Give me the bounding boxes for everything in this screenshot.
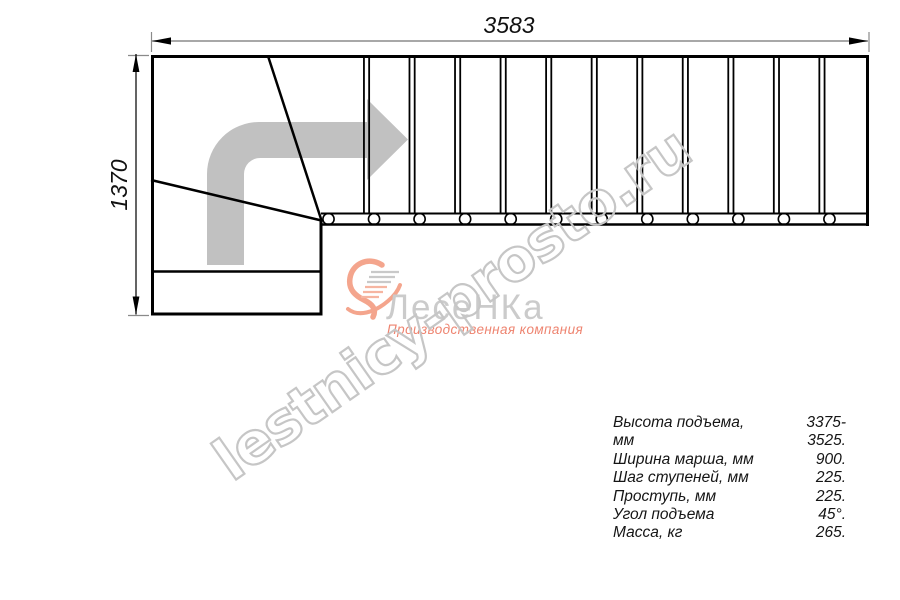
stringer-hole (642, 213, 653, 224)
spec-row-step-pitch: Шаг ступеней, мм 225. (613, 469, 846, 487)
spec-label: Высота подъема, мм (613, 414, 768, 451)
stringer-hole (778, 213, 789, 224)
logo-subtitle: Производственная компания (387, 322, 583, 337)
spec-row-height: Высота подъема, мм 3375-3525. (613, 414, 846, 451)
stringer-hole (551, 213, 562, 224)
spec-value: 225. (816, 488, 846, 506)
spec-label: Масса, кг (613, 524, 682, 542)
spec-table: Высота подъема, мм 3375-3525. Ширина мар… (613, 414, 846, 543)
spec-label: Шаг ступеней, мм (613, 469, 749, 487)
stringer-hole (368, 213, 379, 224)
stringer-hole (596, 213, 607, 224)
spec-value: 45°. (818, 506, 846, 524)
stair-plan-page: 3583 1370 ЛесеНКа Производственная компа… (0, 0, 900, 600)
dimension-left: 1370 (106, 54, 149, 316)
spec-value: 225. (816, 469, 846, 487)
spec-value: 900. (816, 451, 846, 469)
spec-label: Угол подъема (613, 506, 714, 524)
stringer-hole (505, 213, 516, 224)
stringer-hole (824, 213, 835, 224)
spec-value: 265. (816, 524, 846, 542)
spec-row-width: Ширина марша, мм 900. (613, 451, 846, 469)
stringer-hole (460, 213, 471, 224)
spec-label: Ширина марша, мм (613, 451, 754, 469)
stringer-hole (323, 213, 334, 224)
spec-value: 3375-3525. (768, 414, 846, 451)
spec-row-mass: Масса, кг 265. (613, 524, 846, 542)
spec-row-tread: Проступь, мм 225. (613, 488, 846, 506)
spec-label: Проступь, мм (613, 488, 716, 506)
dimension-left-value: 1370 (106, 159, 132, 210)
spec-row-angle: Угол подъема 45°. (613, 506, 846, 524)
dimension-top-value: 3583 (483, 12, 534, 38)
dimension-top: 3583 (152, 12, 870, 52)
stringer-hole (733, 213, 744, 224)
direction-arrow-icon (207, 99, 408, 265)
stringer-hole (687, 213, 698, 224)
stringer-hole (414, 213, 425, 224)
